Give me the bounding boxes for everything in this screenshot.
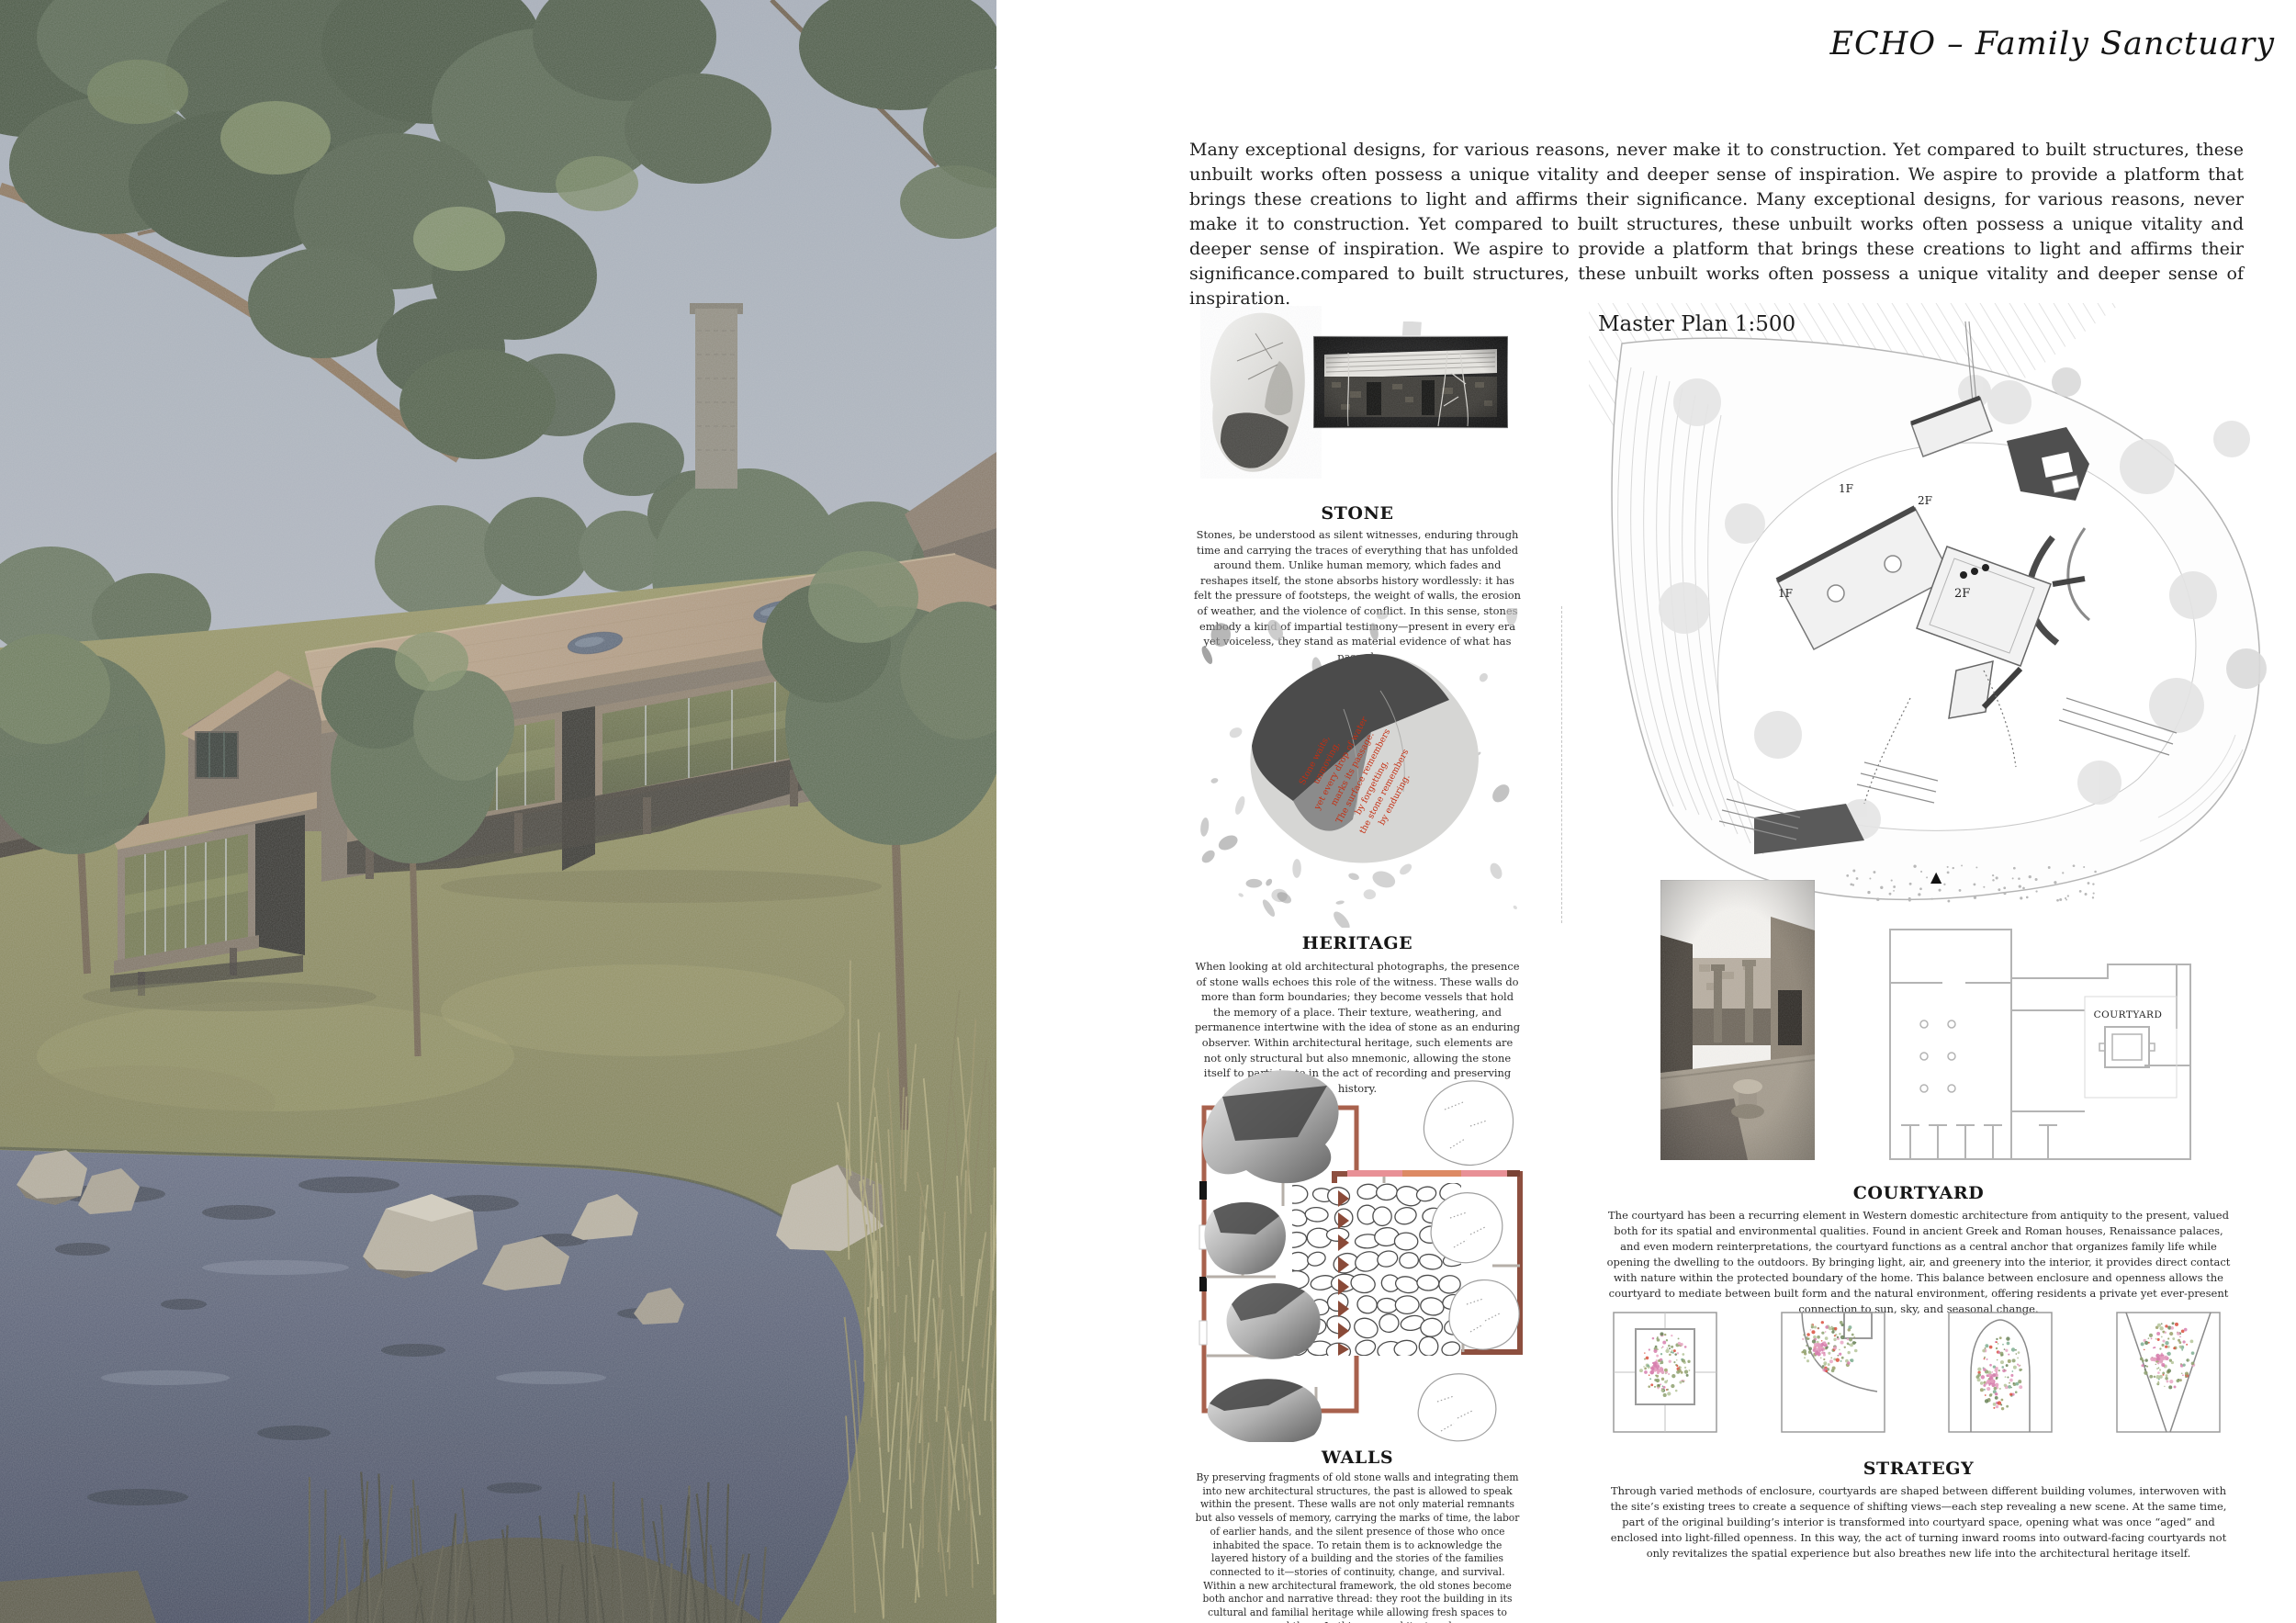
floor-label: 2F bbox=[1954, 587, 1970, 601]
stone-photo bbox=[1200, 306, 1322, 479]
courtyard-photo bbox=[1660, 880, 1815, 1160]
courtyard-body: The courtyard has been a recurring eleme… bbox=[1606, 1208, 2231, 1317]
roman-house-plan: COURTYARD bbox=[1874, 919, 2200, 1171]
strategy-heading: STRATEGY bbox=[1606, 1459, 2231, 1479]
strategy-diagram-3 bbox=[1941, 1305, 2059, 1439]
master-plan-drawing: 1F 2F 2F 1F ▲ Master Plan 1:500 bbox=[1589, 303, 2296, 909]
strategy-diagram-2 bbox=[1774, 1305, 1892, 1439]
courtyard-plan-label: COURTYARD bbox=[2094, 1009, 2163, 1020]
master-plan-title: Master Plan 1:500 bbox=[1598, 312, 1795, 336]
wall-photo bbox=[1313, 321, 1508, 430]
floor-label: 2F bbox=[1918, 494, 1932, 507]
walls-body: By preserving fragments of old stone wal… bbox=[1194, 1471, 1521, 1623]
strategy-diagrams bbox=[1606, 1305, 2227, 1439]
intro-paragraph: Many exceptional designs, for various re… bbox=[1189, 138, 2244, 311]
strategy-body: Through varied methods of enclosure, cou… bbox=[1606, 1483, 2231, 1561]
heritage-heading: HERITAGE bbox=[1194, 933, 1521, 953]
walls-heading: WALLS bbox=[1194, 1448, 1521, 1468]
column-divider bbox=[1561, 606, 1562, 923]
floor-label: 1F bbox=[1839, 482, 1853, 495]
strategy-diagram-1 bbox=[1606, 1305, 1724, 1439]
stone-sketch: Stone waits, unmoving, yet every drop of… bbox=[1197, 608, 1529, 928]
board-title: ECHO – Family Sanctuary bbox=[1829, 26, 2275, 62]
walls-diagram bbox=[1187, 1045, 1540, 1442]
vegetation bbox=[1976, 1336, 2023, 1410]
strategy-diagram-4 bbox=[2110, 1305, 2227, 1439]
north-arrow: ▲ bbox=[1930, 868, 1942, 885]
presentation-board: ECHO – Family Sanctuary Many exceptional… bbox=[0, 0, 2296, 1623]
courtyard-heading: COURTYARD bbox=[1606, 1183, 2231, 1203]
stone-heading: STONE bbox=[1194, 503, 1521, 524]
site-render-image bbox=[0, 0, 996, 1623]
floor-label: 1F bbox=[1778, 587, 1793, 600]
vegetation bbox=[1801, 1321, 1857, 1372]
